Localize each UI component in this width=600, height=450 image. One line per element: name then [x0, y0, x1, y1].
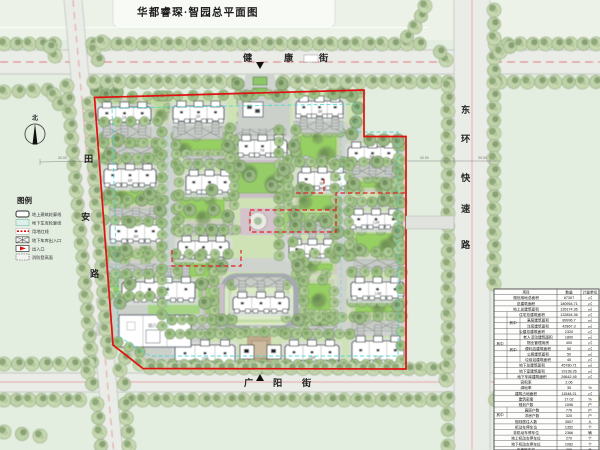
svg-text:容积率: 容积率	[520, 380, 531, 385]
svg-text:30.00: 30.00	[420, 156, 429, 160]
svg-text:地上机动车停车位: 地上机动车停车位	[511, 436, 541, 441]
svg-text:机动车停车位: 机动车停车位	[515, 425, 537, 430]
svg-text:康: 康	[284, 52, 294, 63]
svg-text:地下车库出入口: 地下车库出入口	[32, 237, 61, 244]
svg-text:1352: 1352	[565, 426, 573, 430]
svg-text:广: 广	[244, 377, 253, 388]
svg-text:洋房建筑面积: 洋房建筑面积	[527, 323, 549, 328]
svg-text:45780.71: 45780.71	[561, 364, 576, 368]
svg-text:3#: 3#	[318, 109, 323, 114]
svg-text:35: 35	[567, 386, 571, 390]
svg-text:华都睿琛·智园总平面图: 华都睿琛·智园总平面图	[137, 6, 259, 19]
svg-text:老人活动建筑面积: 老人活动建筑面积	[523, 335, 553, 340]
svg-text:地下车库建筑面积: 地下车库建筑面积	[517, 374, 547, 379]
svg-text:快: 快	[461, 172, 471, 183]
svg-text:其中: 其中	[496, 341, 504, 346]
svg-text:速: 速	[461, 203, 471, 214]
svg-text:高层建筑面积: 高层建筑面积	[527, 318, 549, 323]
svg-text:7#: 7#	[260, 148, 265, 153]
svg-text:2#: 2#	[196, 114, 201, 119]
svg-text:地下室建筑面积: 地下室建筑面积	[519, 368, 545, 373]
svg-text:环: 环	[461, 134, 470, 144]
svg-text:阳: 阳	[273, 378, 282, 388]
svg-text:26642.45: 26642.45	[561, 375, 576, 379]
svg-text:规划居住人数: 规划居住人数	[515, 419, 537, 424]
svg-text:400: 400	[566, 341, 572, 345]
svg-text:公厕建筑面积: 公厕建筑面积	[527, 351, 549, 356]
svg-text:户: 户	[588, 408, 592, 413]
svg-text:其中: 其中	[496, 412, 504, 417]
svg-text:非机动车停车位: 非机动车停车位	[513, 430, 539, 435]
svg-text:50: 50	[567, 347, 571, 351]
svg-text:19138.26: 19138.26	[561, 369, 576, 373]
svg-text:地上总建筑面积: 地上总建筑面积	[513, 307, 539, 312]
svg-text:规划用地总面积: 规划用地总面积	[513, 295, 539, 300]
svg-text:图例: 图例	[17, 195, 32, 205]
svg-text:规划户数: 规划户数	[519, 402, 534, 407]
svg-text:270: 270	[566, 437, 572, 441]
svg-text:4#: 4#	[128, 178, 133, 183]
svg-text:公建总建筑面积: 公建总建筑面积	[519, 329, 545, 334]
svg-text:1096: 1096	[565, 403, 573, 407]
svg-text:2320: 2320	[565, 330, 573, 334]
svg-text:其中: 其中	[509, 320, 517, 325]
svg-text:个: 个	[588, 441, 592, 446]
svg-text:用地红线: 用地红线	[32, 228, 50, 235]
svg-text:路: 路	[461, 239, 471, 250]
svg-text:㎡: ㎡	[588, 295, 592, 300]
svg-text:出入口: 出入口	[32, 245, 45, 252]
svg-text:㎡: ㎡	[588, 374, 592, 379]
svg-text:路: 路	[90, 268, 100, 279]
svg-text:高层户数: 高层户数	[525, 408, 540, 413]
svg-text:地下机动车停车位: 地下机动车停车位	[511, 441, 541, 446]
svg-text:135174.36: 135174.36	[560, 308, 577, 312]
svg-text:㎡: ㎡	[588, 391, 592, 396]
svg-text:㎡: ㎡	[588, 301, 592, 306]
svg-text:776: 776	[566, 409, 572, 413]
svg-text:洋房户数: 洋房户数	[525, 413, 540, 418]
svg-text:辆: 辆	[588, 430, 592, 435]
svg-text:便利店建筑面积: 便利店建筑面积	[525, 346, 551, 351]
svg-text:数量: 数量	[565, 290, 573, 295]
svg-text:户: 户	[588, 413, 592, 418]
svg-text:320: 320	[566, 414, 572, 418]
svg-text:2.06: 2.06	[565, 381, 572, 385]
svg-text:绿地率: 绿地率	[520, 385, 531, 390]
svg-text:40: 40	[567, 358, 571, 362]
svg-text:180954.71: 180954.71	[560, 302, 577, 306]
svg-text:个: 个	[588, 425, 592, 430]
svg-text:11548.21: 11548.21	[561, 392, 576, 396]
svg-text:17.02: 17.02	[564, 397, 573, 401]
svg-text:30.00: 30.00	[58, 156, 67, 160]
svg-text:㎡: ㎡	[588, 329, 592, 334]
svg-text:人: 人	[588, 419, 592, 424]
svg-text:北: 北	[32, 114, 38, 122]
svg-text:14#: 14#	[375, 291, 383, 296]
svg-text:田: 田	[84, 154, 93, 164]
svg-text:计量单位: 计量单位	[583, 290, 598, 295]
svg-text:安: 安	[81, 211, 90, 222]
svg-text:㎡: ㎡	[588, 340, 592, 345]
svg-text:1082: 1082	[565, 442, 573, 446]
svg-text:㎡: ㎡	[588, 363, 592, 368]
svg-text:个: 个	[588, 436, 592, 441]
svg-text:㎡: ㎡	[588, 318, 592, 323]
svg-text:㎡: ㎡	[588, 323, 592, 328]
svg-text:12#: 12#	[373, 220, 381, 225]
svg-text:物业管理用房: 物业管理用房	[527, 340, 549, 345]
svg-text:其中: 其中	[509, 347, 517, 352]
svg-text:㎡: ㎡	[588, 335, 592, 340]
svg-text:㎡: ㎡	[588, 307, 592, 312]
svg-text:项目: 项目	[522, 290, 530, 295]
svg-text:1800: 1800	[565, 336, 573, 340]
svg-text:东: 东	[461, 104, 470, 115]
svg-text:9#: 9#	[134, 234, 139, 239]
svg-text:住宅总建筑面积: 住宅总建筑面积	[519, 312, 545, 317]
svg-text:地上建筑轮廓线: 地上建筑轮廓线	[32, 211, 62, 218]
svg-text:30.00: 30.00	[478, 156, 487, 160]
svg-text:132854.36: 132854.36	[560, 313, 577, 317]
svg-text:3507: 3507	[565, 420, 573, 424]
svg-text:街: 街	[318, 52, 329, 63]
svg-text:建筑密度: 建筑密度	[519, 396, 534, 401]
svg-text:健: 健	[243, 52, 253, 63]
svg-text:街: 街	[301, 377, 312, 388]
svg-text:67307: 67307	[564, 296, 574, 300]
svg-text:㎡: ㎡	[588, 357, 592, 362]
svg-text:2366: 2366	[565, 431, 573, 435]
svg-text:50: 50	[567, 352, 571, 356]
svg-text:消防登高面: 消防登高面	[32, 254, 53, 261]
svg-text:地下车库轮廓线: 地下车库轮廓线	[32, 220, 62, 227]
svg-text:㎡: ㎡	[588, 312, 592, 317]
svg-text:42867.3: 42867.3	[562, 324, 575, 328]
svg-text:垃圾站建筑面积: 垃圾站建筑面积	[525, 357, 551, 362]
svg-text:㎡: ㎡	[588, 351, 592, 356]
svg-text:建筑占地面积: 建筑占地面积	[515, 391, 537, 396]
svg-text:地下总建筑面积: 地下总建筑面积	[519, 363, 545, 368]
svg-text:㎡: ㎡	[588, 346, 592, 351]
svg-text:户: 户	[588, 402, 592, 407]
svg-text:总建筑面积: 总建筑面积	[517, 301, 536, 306]
svg-text:㎡: ㎡	[588, 368, 592, 373]
svg-text:89996.7: 89996.7	[562, 319, 575, 323]
